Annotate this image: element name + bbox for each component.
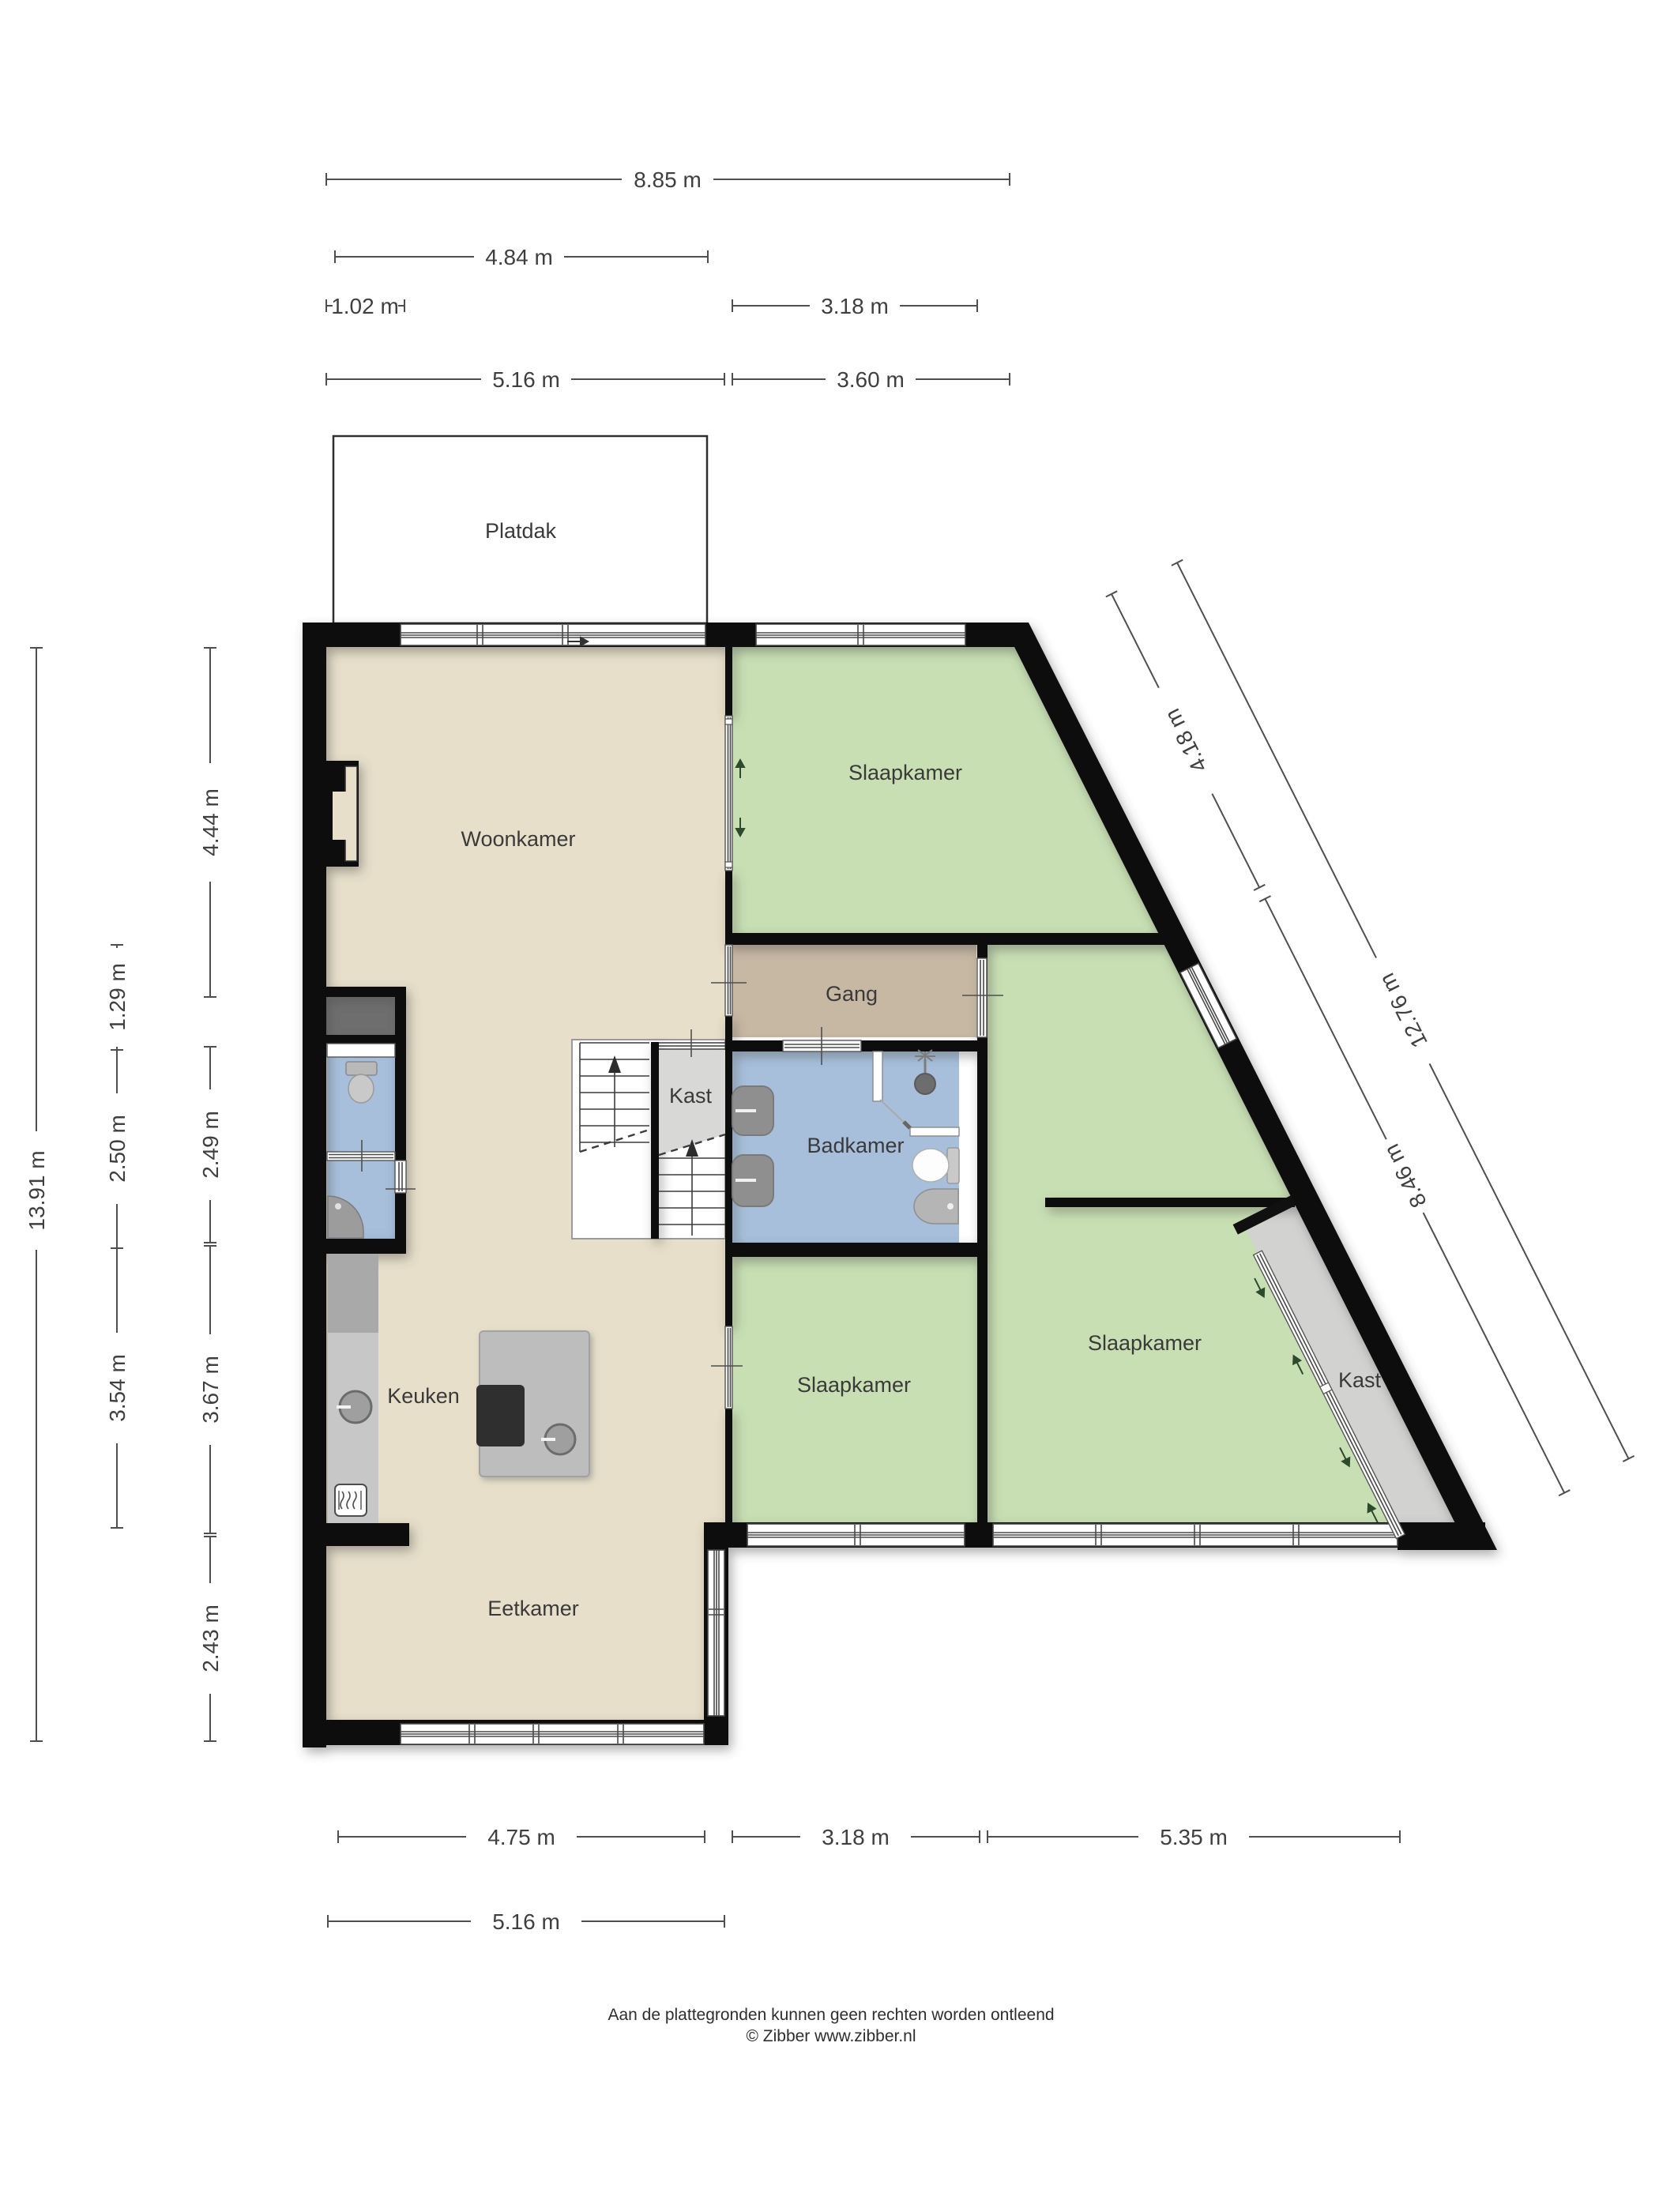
svg-text:Woonkamer: Woonkamer (461, 827, 575, 851)
svg-text:2.43 m: 2.43 m (198, 1604, 223, 1672)
svg-text:Keuken: Keuken (387, 1384, 460, 1408)
svg-text:4.84 m: 4.84 m (485, 245, 553, 269)
svg-text:Slaapkamer: Slaapkamer (797, 1373, 911, 1397)
svg-text:3.67 m: 3.67 m (198, 1356, 223, 1424)
svg-text:5.16 m: 5.16 m (492, 1909, 560, 1934)
svg-text:Gang: Gang (826, 982, 878, 1006)
svg-text:2.50 m: 2.50 m (105, 1115, 130, 1183)
svg-text:Kast: Kast (669, 1084, 713, 1108)
svg-text:Platdak: Platdak (485, 519, 557, 543)
svg-text:Eetkamer: Eetkamer (487, 1597, 579, 1620)
svg-text:2.49 m: 2.49 m (198, 1111, 223, 1179)
svg-text:8.85 m: 8.85 m (634, 167, 702, 192)
svg-text:Kast: Kast (1338, 1368, 1382, 1392)
svg-text:Slaapkamer: Slaapkamer (1088, 1331, 1202, 1355)
svg-text:Badkamer: Badkamer (807, 1134, 904, 1157)
svg-text:4.44 m: 4.44 m (198, 788, 223, 856)
svg-text:3.54 m: 3.54 m (105, 1354, 130, 1422)
svg-text:5.16 m: 5.16 m (492, 367, 560, 392)
svg-text:3.18 m: 3.18 m (822, 1825, 890, 1849)
svg-text:13.91 m: 13.91 m (24, 1150, 49, 1230)
svg-text:3.18 m: 3.18 m (821, 294, 889, 318)
svg-text:4.75 m: 4.75 m (487, 1825, 555, 1849)
svg-text:5.35 m: 5.35 m (1160, 1825, 1228, 1849)
svg-text:3.60 m: 3.60 m (837, 367, 905, 392)
svg-text:1.29 m: 1.29 m (105, 963, 130, 1031)
svg-text:1.02 m: 1.02 m (331, 294, 399, 318)
svg-text:Slaapkamer: Slaapkamer (848, 761, 962, 784)
svg-text:© Zibber www.zibber.nl: © Zibber www.zibber.nl (746, 2027, 916, 2045)
svg-text:Aan de plattegronden kunnen ge: Aan de plattegronden kunnen geen rechten… (608, 2006, 1054, 2024)
